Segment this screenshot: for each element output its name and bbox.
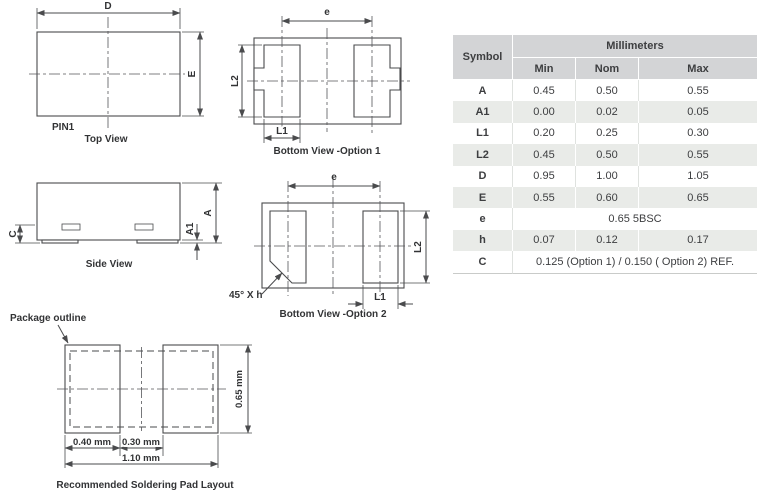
package-outline-leader xyxy=(58,325,68,343)
table-cell: A1 xyxy=(453,101,512,122)
bottom1-caption: Bottom View -Option 1 xyxy=(273,146,380,157)
table-row: L2 0.45 0.50 0.55 xyxy=(453,144,757,165)
dim-a-label: A xyxy=(203,209,214,216)
table-cell: 0.45 xyxy=(512,144,575,165)
table-cell: 0.17 xyxy=(638,230,757,251)
table-cell: 0.65 xyxy=(638,187,757,208)
table-row: A1 0.00 0.02 0.05 xyxy=(453,101,757,122)
table-cell: 0.25 xyxy=(575,123,638,144)
table-cell: 0.55 xyxy=(638,144,757,165)
dim-total-width-label: 1.10 mm xyxy=(122,453,160,464)
dim-d-label: D xyxy=(104,1,111,12)
symbol-header: Symbol xyxy=(453,35,512,80)
table-row: L1 0.20 0.25 0.30 xyxy=(453,123,757,144)
pin1-label: PIN1 xyxy=(52,122,75,133)
table-cell: h xyxy=(453,230,512,251)
table-cell: L2 xyxy=(453,144,512,165)
pad-layout-caption: Recommended Soldering Pad Layout xyxy=(56,480,234,491)
table-cell: A xyxy=(453,80,512,101)
table-cell: D xyxy=(453,166,512,187)
table-cell-span: 0.125 (Option 1) / 0.150 ( Option 2) REF… xyxy=(512,251,757,273)
table-cell: L1 xyxy=(453,123,512,144)
table-cell: 0.60 xyxy=(575,187,638,208)
pad-layout: Package outline 0.40 mm 0.30 mm 1.10 mm … xyxy=(10,313,252,491)
dimensions-table: Symbol Millimeters Min Nom Max A 0.45 0.… xyxy=(453,35,757,274)
dim-gap-label: 0.30 mm xyxy=(122,437,160,448)
top-view: D E PIN1 Top View xyxy=(29,1,204,145)
side-view-right-pad xyxy=(137,240,178,243)
package-dimensions-page: D E PIN1 Top View e L2 L1 Bottom View -O… xyxy=(0,0,760,498)
table-cell: 0.55 xyxy=(512,187,575,208)
min-header: Min xyxy=(512,58,575,80)
table-cell-span: 0.65 5BSC xyxy=(512,208,757,229)
table-cell: 0.50 xyxy=(575,144,638,165)
table-cell: e xyxy=(453,208,512,229)
table-cell: 0.20 xyxy=(512,123,575,144)
dim-a1-label: A1 xyxy=(185,222,196,235)
dim-l1-label-1: L1 xyxy=(276,126,288,137)
table-row: A 0.45 0.50 0.55 xyxy=(453,80,757,101)
table-cell: C xyxy=(453,251,512,273)
dim-e-label: E xyxy=(187,70,198,77)
table-cell: 0.07 xyxy=(512,230,575,251)
side-view-caption: Side View xyxy=(86,259,133,270)
table-cell: 0.45 xyxy=(512,80,575,101)
dim-c-label: C xyxy=(8,230,19,237)
bottom2-right-pad xyxy=(363,211,398,283)
bottom-view-option2: e L2 L1 45° X h Bottom View -Option 2 xyxy=(229,172,430,320)
table-cell: 0.02 xyxy=(575,101,638,122)
table-cell: 0.00 xyxy=(512,101,575,122)
table-cell: 0.55 xyxy=(638,80,757,101)
table-row: e 0.65 5BSC xyxy=(453,208,757,229)
chamfer-label: 45° X h xyxy=(229,290,262,301)
table-header-row: Symbol Millimeters xyxy=(453,35,757,58)
table-cell: 0.95 xyxy=(512,166,575,187)
dim-pad-width-label: 0.40 mm xyxy=(73,437,111,448)
side-view-body xyxy=(37,183,180,240)
table-row: D 0.95 1.00 1.05 xyxy=(453,166,757,187)
nom-header: Nom xyxy=(575,58,638,80)
top-view-caption: Top View xyxy=(85,134,128,145)
table-cell: E xyxy=(453,187,512,208)
millimeters-header: Millimeters xyxy=(512,35,757,58)
dim-e-pitch-label-2: e xyxy=(331,172,337,183)
bottom2-caption: Bottom View -Option 2 xyxy=(279,309,386,320)
table-cell: 0.12 xyxy=(575,230,638,251)
package-outline-label: Package outline xyxy=(10,313,87,324)
side-view-left-pad xyxy=(42,240,78,243)
dim-pad-height-label: 0.65 mm xyxy=(234,370,245,408)
side-view: C A A1 Side View xyxy=(8,183,222,270)
table-cell: 1.00 xyxy=(575,166,638,187)
table-row: h 0.07 0.12 0.17 xyxy=(453,230,757,251)
table-row: C 0.125 (Option 1) / 0.150 ( Option 2) R… xyxy=(453,251,757,273)
dim-e-pitch-label-1: e xyxy=(324,7,330,18)
table-cell: 0.30 xyxy=(638,123,757,144)
table-row: E 0.55 0.60 0.65 xyxy=(453,187,757,208)
dim-l2-label-1: L2 xyxy=(230,75,241,87)
dim-l1-label-2: L1 xyxy=(374,292,386,303)
table-cell: 1.05 xyxy=(638,166,757,187)
table-cell: 0.50 xyxy=(575,80,638,101)
table-cell: 0.05 xyxy=(638,101,757,122)
max-header: Max xyxy=(638,58,757,80)
dim-l2-label-2: L2 xyxy=(413,241,424,253)
bottom-view-option1: e L2 L1 Bottom View -Option 1 xyxy=(230,7,410,157)
